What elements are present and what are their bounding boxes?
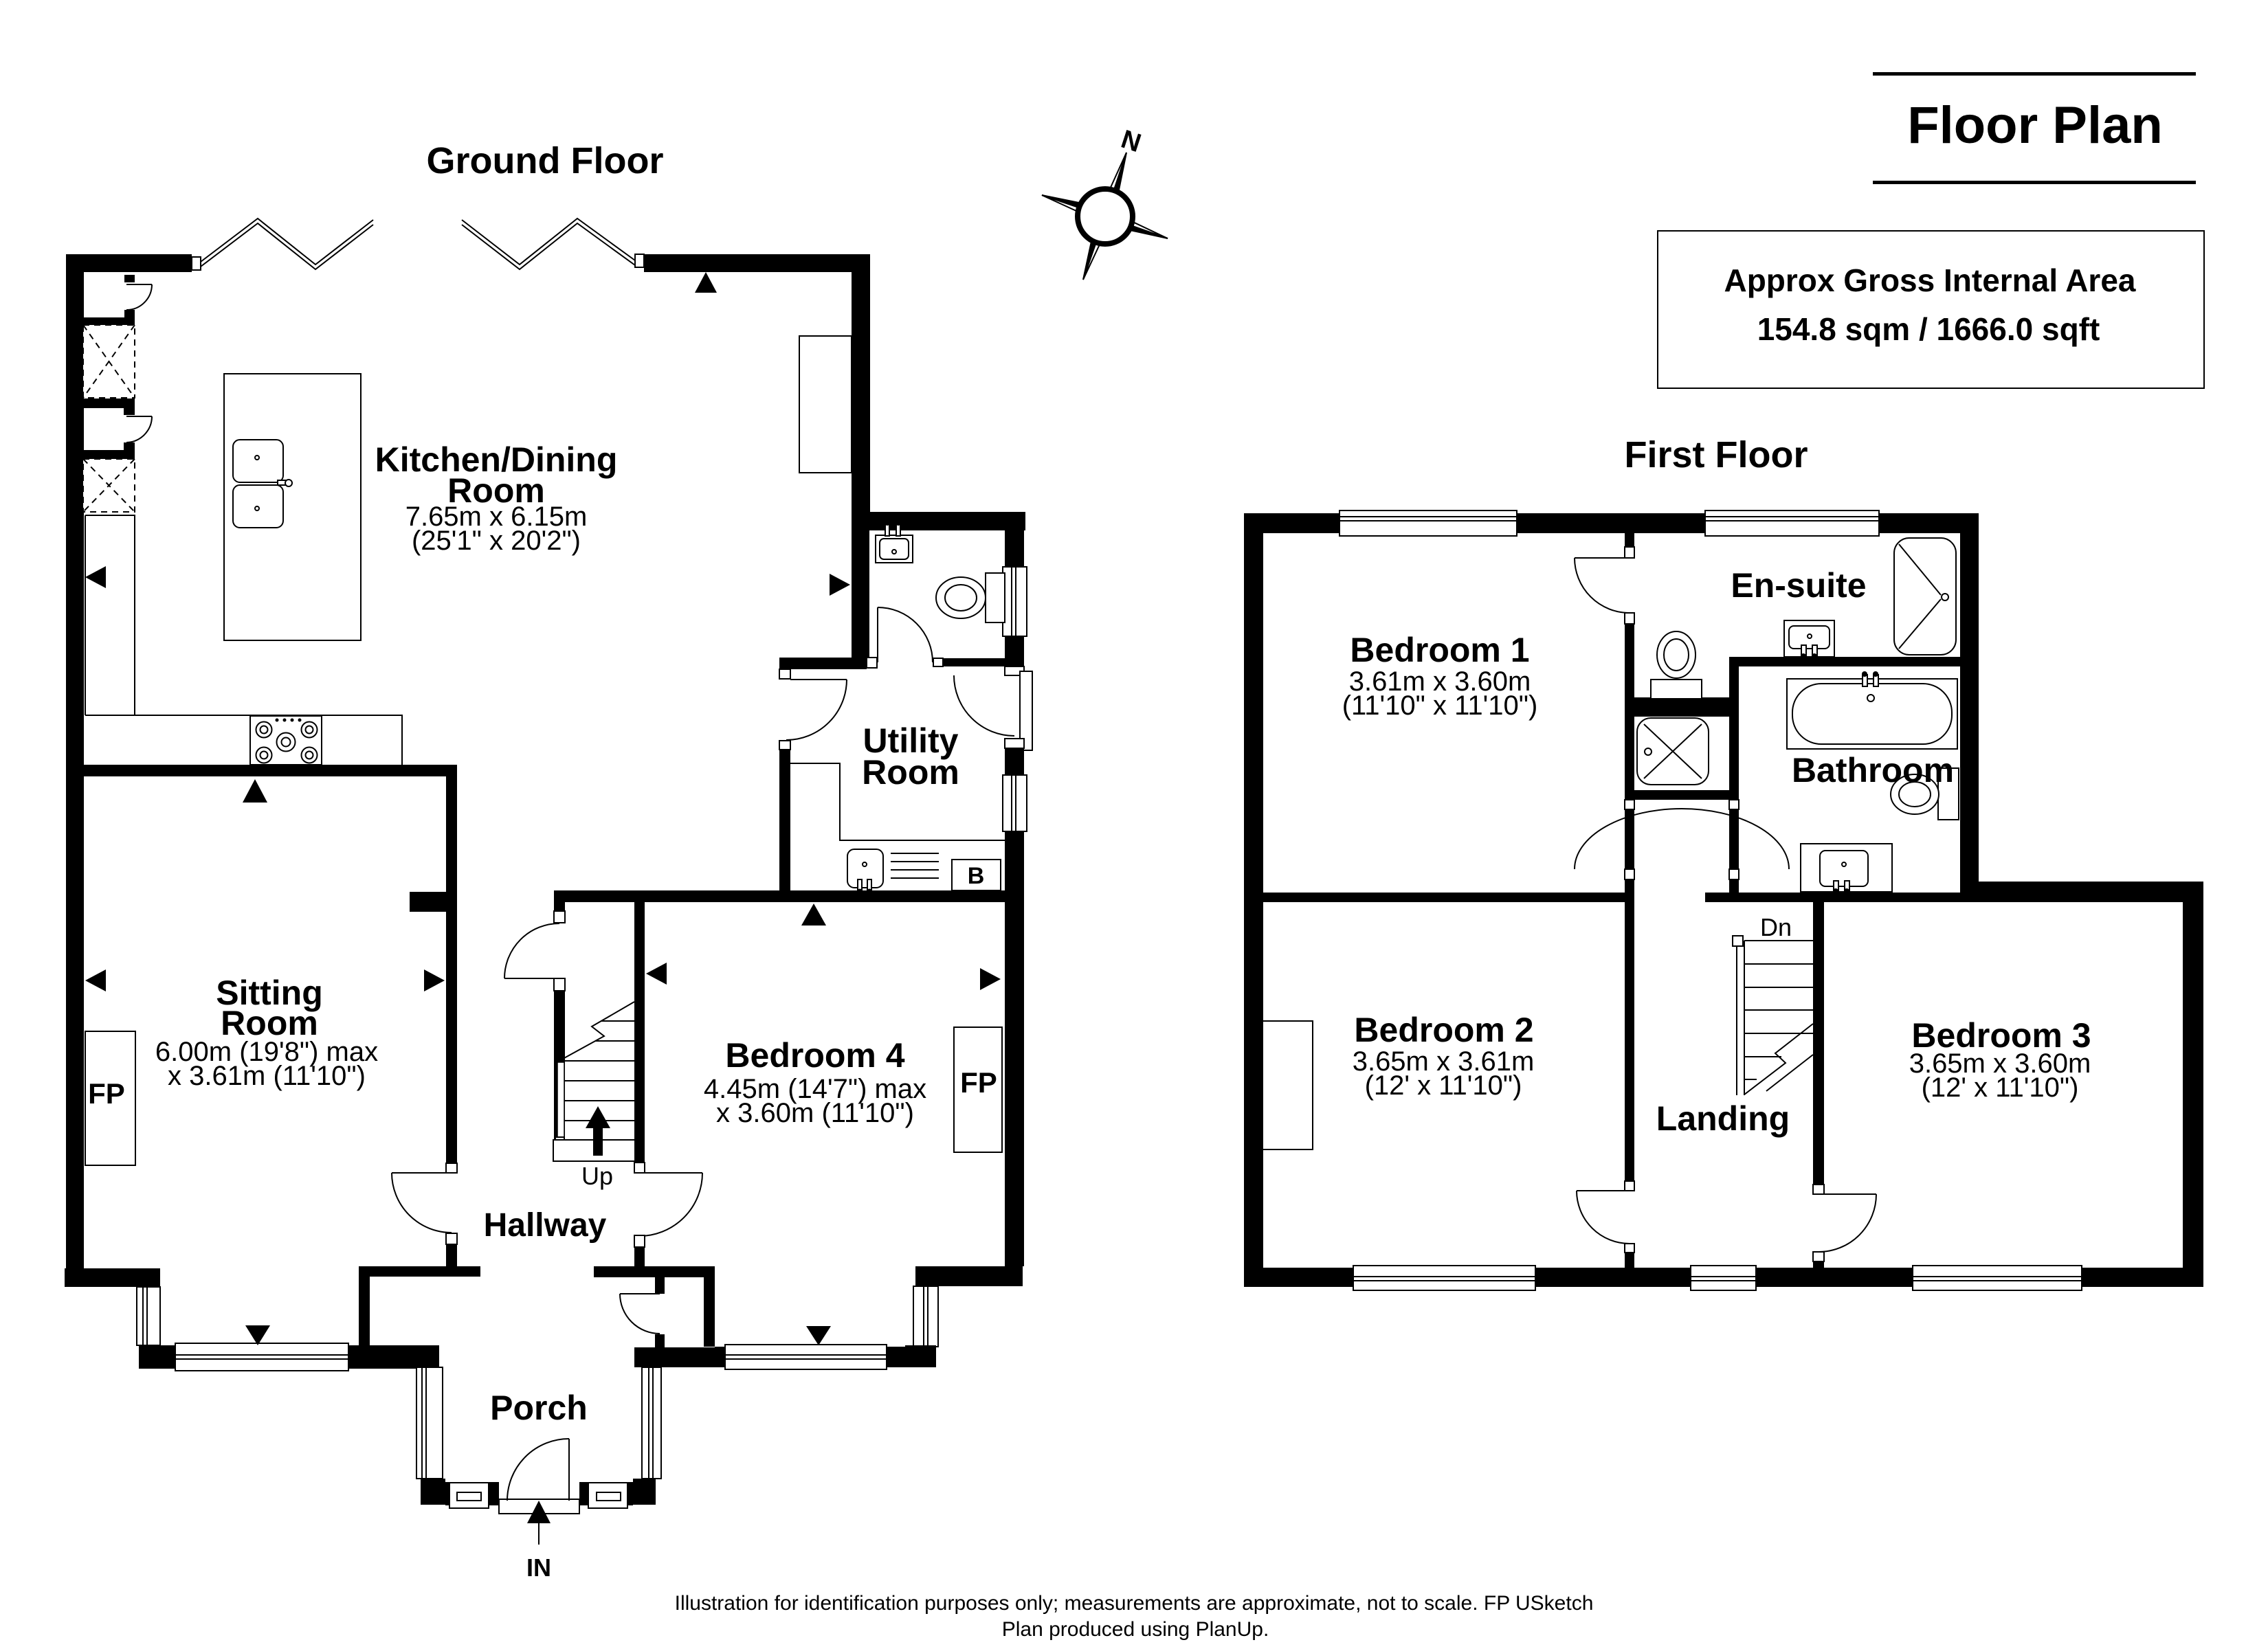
svg-text:Hallway: Hallway bbox=[484, 1207, 607, 1244]
svg-text:IN: IN bbox=[526, 1553, 551, 1582]
svg-text:(12' x 11'10"): (12' x 11'10") bbox=[1922, 1073, 2079, 1103]
svg-text:First Floor: First Floor bbox=[1625, 434, 1808, 475]
svg-text:(11'10" x 11'10"): (11'10" x 11'10") bbox=[1342, 691, 1538, 721]
svg-text:FP: FP bbox=[88, 1077, 125, 1110]
svg-text:Ground Floor: Ground Floor bbox=[427, 140, 664, 181]
svg-text:B: B bbox=[968, 863, 985, 889]
svg-text:Bedroom 1: Bedroom 1 bbox=[1350, 631, 1529, 669]
svg-text:Dn: Dn bbox=[1760, 913, 1792, 941]
svg-text:FP: FP bbox=[960, 1066, 997, 1099]
svg-text:Bedroom 2: Bedroom 2 bbox=[1354, 1011, 1533, 1049]
svg-text:Approx Gross Internal Area: Approx Gross Internal Area bbox=[1724, 262, 2135, 298]
svg-text:Floor Plan: Floor Plan bbox=[1907, 96, 2163, 155]
svg-text:154.8 sqm / 1666.0 sqft: 154.8 sqm / 1666.0 sqft bbox=[1757, 311, 2100, 347]
svg-text:Bathroom: Bathroom bbox=[1792, 751, 1954, 789]
svg-text:Illustration for identificatio: Illustration for identification purposes… bbox=[675, 1592, 1594, 1615]
svg-text:En-suite: En-suite bbox=[1731, 566, 1866, 605]
svg-text:Porch: Porch bbox=[490, 1389, 588, 1427]
svg-text:Plan produced using PlanUp.: Plan produced using PlanUp. bbox=[1002, 1618, 1269, 1641]
svg-text:Landing: Landing bbox=[1656, 1099, 1790, 1138]
svg-text:Bedroom 4: Bedroom 4 bbox=[725, 1036, 904, 1075]
svg-text:Room: Room bbox=[862, 753, 959, 792]
svg-text:(25'1" x 20'2"): (25'1" x 20'2") bbox=[412, 526, 581, 556]
svg-text:Up: Up bbox=[581, 1162, 613, 1190]
svg-text:x 3.61m (11'10"): x 3.61m (11'10") bbox=[168, 1061, 366, 1091]
svg-text:(12' x 11'10"): (12' x 11'10") bbox=[1365, 1070, 1522, 1101]
svg-text:x 3.60m (11'10"): x 3.60m (11'10") bbox=[716, 1098, 914, 1128]
